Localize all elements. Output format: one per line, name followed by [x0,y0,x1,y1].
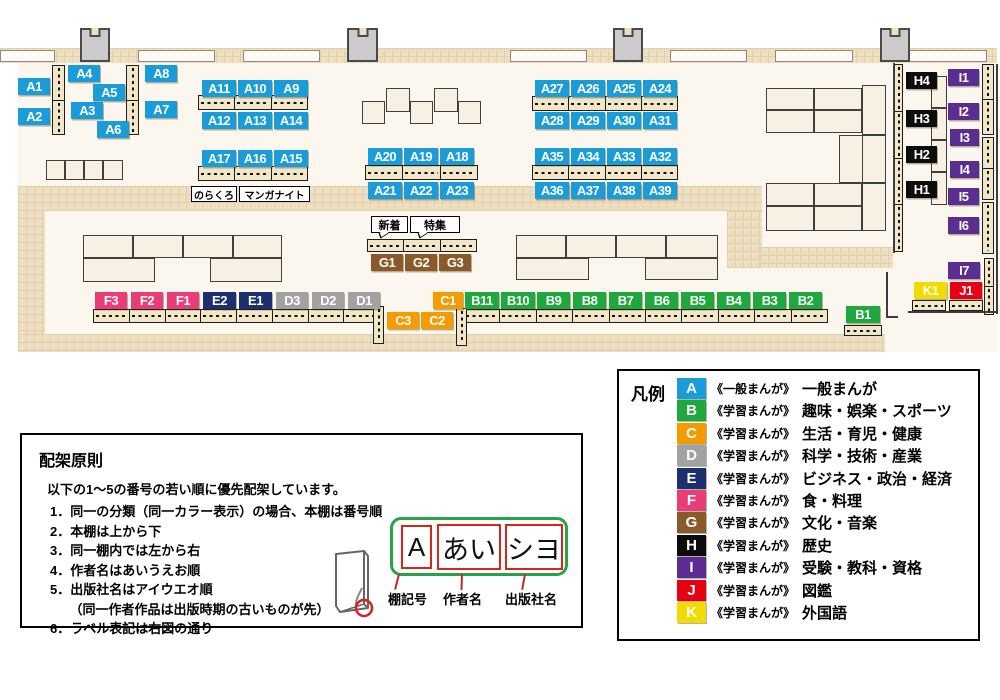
shelf-label-H4: H4 [906,72,937,89]
legend-chip-C: C [677,423,706,444]
legend-row-H: H《学習まんが》歴史 [677,535,832,556]
shelf-block [766,206,814,231]
shelf-segment [895,158,902,205]
shelf-block [814,183,862,206]
shelf-block [814,110,862,133]
legend-row-K: K《学習まんが》外国語 [677,602,847,623]
shelf-strip [984,258,994,315]
shelf-strip [532,165,678,180]
shelf-label-A20: A20 [368,148,402,165]
shelf-label-A2: A2 [18,108,50,125]
legend-chip-K: K [677,602,706,623]
legend-category: 趣味・娯楽・スポーツ [802,400,952,421]
shelf-label-A22: A22 [404,182,438,199]
shelf-segment [985,259,993,286]
legend-row-A: A《一般まんが》一般まんが [677,378,877,399]
shelf-label-A18: A18 [440,148,474,165]
legend-category: 一般まんが [802,378,877,399]
shelf-strip [894,64,903,252]
shelf-segment [983,99,993,134]
shelf-segment [236,310,272,322]
shelf-segment [499,310,535,322]
wall-line [908,311,998,313]
shelf-label-A10: A10 [238,80,272,97]
shelf-label-J1: J1 [950,282,982,299]
shelf-label-A31: A31 [643,112,677,129]
shelf-segment [681,310,717,322]
legend-type-label: 《学習まんが》 [711,514,802,531]
shelf-segment [983,203,993,253]
spine-label-part-1: A [401,525,432,569]
shelf-label-A8: A8 [145,65,177,82]
shelf-label-K1: K1 [914,282,947,299]
legend-chip-A: A [677,378,706,399]
map-annotation-new-arrivals: 新着 [371,216,408,233]
shelf-block [666,235,718,258]
shelf-label-B4: B4 [717,292,750,309]
legend-type-label: 《学習まんが》 [711,582,802,599]
shelf-segment [165,310,201,322]
shelf-label-A32: A32 [643,148,677,165]
shelf-label-A6: A6 [97,121,129,138]
shelf-strip [373,306,384,344]
shelf-strip [198,166,308,181]
legend-category: 科学・技術・産業 [802,445,922,466]
shelf-label-A3: A3 [71,102,103,119]
callout-label-3: 出版社名 [505,589,557,608]
legend-chip-D: D [677,445,706,466]
spine-label-diagram: Aあいシヨ [390,517,568,576]
shelf-segment [53,100,64,135]
shelf-block [210,258,282,282]
shelf-segment [53,66,64,100]
shelf-segment [605,166,641,179]
shelf-label-A17: A17 [202,150,236,167]
shelf-label-B10: B10 [501,292,535,309]
legend-type-label: 《学習まんが》 [711,604,802,621]
shelf-strip [532,96,678,111]
book-illustration [326,548,378,620]
shelf-label-I5: I5 [948,188,979,205]
legend-category: 歴史 [802,535,832,556]
principles-intro: 以下の1～5の番号の若い順に優先配架しています。 [47,479,346,498]
shelf-segment [402,166,439,179]
shelf-segment [308,310,344,322]
principles-item: 1．同一の分類（同一カラー表示）の場合、本棚は番号順 [50,502,382,522]
shelf-label-A33: A33 [607,148,641,165]
legend-row-G: G《学習まんが》文化・音楽 [677,512,877,533]
shelf-label-A11: A11 [202,80,236,97]
map-annotation-norakuro: のらくろ [191,186,237,202]
legend-row-E: E《学習まんが》ビジネス・政治・経済 [677,468,952,489]
shelf-label-I7: I7 [948,262,980,279]
shelf-label-A13: A13 [238,112,272,129]
shelf-label-H1: H1 [906,181,937,198]
wall-line [893,63,895,253]
shelf-label-F1: F1 [167,292,199,309]
shelf-block [862,135,886,183]
legend-type-label: 《学習まんが》 [711,537,802,554]
principles-title: 配架原則 [39,447,103,471]
shelf-strip [982,64,994,135]
window [670,50,747,62]
shelf-label-A4: A4 [68,65,100,82]
shelf-label-A24: A24 [643,80,677,97]
pillar [347,28,378,62]
shelf-strip [844,325,882,336]
shelf-label-G1: G1 [371,254,403,271]
shelf-segment [440,166,477,179]
legend-category: 生活・育児・健康 [802,423,922,444]
shelf-segment [199,96,234,109]
shelf-strip [912,300,946,311]
shelf-block [83,235,133,258]
shelf-label-G2: G2 [405,254,437,271]
legend-category: 食・料理 [802,490,862,511]
shelf-block [434,88,458,112]
window [908,50,987,62]
legend-chip-F: F [677,490,706,511]
legend-category: 図鑑 [802,580,832,601]
legend-chip-H: H [677,535,706,556]
shelf-block [84,160,103,180]
shelf-label-A7: A7 [145,101,177,118]
shelf-segment [718,310,754,322]
legend-chip-E: E [677,468,706,489]
shelf-label-A34: A34 [571,148,605,165]
shelf-segment [641,166,677,179]
shelf-segment [641,97,677,110]
shelf-segment [645,310,681,322]
shelf-segment [845,326,881,335]
shelf-label-A27: A27 [535,80,569,97]
shelf-label-A28: A28 [535,112,569,129]
shelf-label-A14: A14 [274,112,308,129]
shelf-segment [895,204,902,251]
shelf-segment [271,167,307,180]
shelf-segment [464,310,499,322]
window [510,50,587,62]
pillar [880,28,910,62]
shelf-label-E2: E2 [203,292,236,309]
shelf-segment [533,166,568,179]
shelf-label-H2: H2 [906,146,937,163]
shelf-block [233,235,282,258]
shelf-block [133,235,183,258]
shelf-strip [367,239,477,252]
shelf-label-A19: A19 [404,148,438,165]
shelf-segment [895,111,902,158]
shelf-label-G3: G3 [439,254,471,271]
shelf-segment [457,309,466,345]
shelf-label-B2: B2 [789,292,822,309]
shelf-label-I2: I2 [948,103,979,120]
shelf-label-I3: I3 [950,129,979,146]
spine-label-part-3: シヨ [505,524,563,570]
shelf-strip [93,309,380,323]
shelf-block [766,183,814,206]
shelf-block [103,160,123,180]
wall-band [18,334,885,352]
shelf-segment [234,167,270,180]
shelf-strip [456,308,467,346]
shelf-label-C1: C1 [433,292,463,309]
shelf-segment [374,307,383,343]
shelf-label-B6: B6 [645,292,678,309]
shelf-label-A38: A38 [607,182,641,199]
shelf-label-E1: E1 [239,292,272,309]
legend-category: 文化・音楽 [802,512,877,533]
shelf-block [362,101,385,124]
shelf-label-A23: A23 [440,182,474,199]
shelf-label-A16: A16 [238,150,272,167]
shelf-segment [913,301,945,310]
pillar [80,28,110,62]
legend-type-label: 《学習まんが》 [711,492,802,509]
shelf-label-D1: D1 [348,292,380,309]
shelf-segment [533,97,568,110]
shelf-label-A5: A5 [93,84,125,101]
shelf-segment [754,310,790,322]
wall-line [996,64,998,314]
legend-type-label: 《学習まんが》 [711,425,802,442]
principles-item: 6．ラベル表記は右図の通り [50,619,382,639]
window [138,50,215,62]
shelf-block [814,88,862,110]
shelf-strip [982,202,994,254]
map-annotation-special-feature: 特集 [410,216,460,233]
legend-category: 外国語 [802,602,847,623]
legend: 凡例 A《一般まんが》一般まんがB《学習まんが》趣味・娯楽・スポーツC《学習まん… [617,369,980,641]
shelf-segment [94,310,129,322]
callout-label-2: 作者名 [443,589,482,608]
shelf-segment [983,138,993,168]
legend-chip-J: J [677,580,706,601]
shelf-label-A39: A39 [643,182,677,199]
shelf-label-I4: I4 [950,161,979,178]
map-annotation-manga-night: マンガナイト [239,186,310,202]
shelf-segment [440,240,476,251]
legend-type-label: 《学習まんが》 [711,447,802,464]
shelf-block [83,258,155,282]
legend-chip-I: I [677,557,706,578]
legend-category: 受験・教科・資格 [802,557,922,578]
pillar [613,28,643,62]
shelf-label-F3: F3 [95,292,127,309]
shelf-block [862,85,886,135]
shelf-label-A37: A37 [571,182,605,199]
shelf-label-I6: I6 [948,217,979,234]
shelf-label-D2: D2 [312,292,344,309]
legend-row-C: C《学習まんが》生活・育児・健康 [677,423,922,444]
shelf-label-A12: A12 [202,112,236,129]
shelf-block [566,235,616,258]
shelf-block [814,206,862,231]
shelf-segment [127,66,138,100]
legend-title: 凡例 [631,380,665,405]
wall-band [760,247,893,268]
shelf-label-D3: D3 [276,292,308,309]
shelf-label-A21: A21 [368,182,402,199]
shelf-segment [609,310,645,322]
legend-row-I: I《学習まんが》受験・教科・資格 [677,557,922,578]
shelf-label-C2: C2 [421,312,453,329]
legend-type-label: 《学習まんが》 [711,559,802,576]
shelf-block [46,160,65,180]
principles-item: 2．本棚は上から下 [50,522,382,542]
shelf-strip [982,137,994,200]
shelf-label-B3: B3 [753,292,786,309]
shelf-label-A15: A15 [274,150,308,167]
shelf-label-A25: A25 [607,80,641,97]
shelf-segment [985,286,993,314]
shelf-strip [365,165,478,180]
shelf-strip [52,65,65,135]
shelf-label-B9: B9 [537,292,570,309]
legend-row-D: D《学習まんが》科学・技術・産業 [677,445,922,466]
shelf-label-B1: B1 [846,306,880,323]
shelf-label-A29: A29 [571,112,605,129]
shelf-segment [234,96,270,109]
shelf-label-B5: B5 [681,292,714,309]
shelf-segment [129,310,165,322]
shelf-block [410,101,433,124]
window [775,50,853,62]
shelf-segment [200,310,236,322]
shelf-block [839,135,863,183]
legend-type-label: 《学習まんが》 [711,402,802,419]
shelf-segment [199,167,234,180]
shelf-block [386,88,410,112]
shelf-segment [895,65,902,111]
shelf-label-B7: B7 [609,292,642,309]
shelf-segment [572,310,608,322]
shelf-label-A26: A26 [571,80,605,97]
shelf-label-H3: H3 [906,110,937,127]
shelf-block [862,183,886,231]
window [0,50,55,62]
shelf-block [766,88,814,110]
shelf-label-B11: B11 [465,292,499,309]
shelf-segment [271,96,307,109]
shelf-label-A35: A35 [535,148,569,165]
shelf-label-C3: C3 [387,312,419,329]
shelf-label-A9: A9 [274,80,308,97]
legend-type-label: 《一般まんが》 [711,380,802,397]
shelf-strip [463,309,828,323]
shelf-segment [983,168,993,199]
shelf-segment [568,166,604,179]
shelf-strip [949,300,983,311]
legend-chip-G: G [677,512,706,533]
shelf-label-I1: I1 [948,69,979,86]
legend-row-F: F《学習まんが》食・料理 [677,490,862,511]
shelf-segment [950,301,982,310]
wall-band [18,186,45,352]
shelf-segment [568,97,604,110]
shelf-label-A30: A30 [607,112,641,129]
shelf-segment [272,310,308,322]
wall-band [727,211,762,268]
shelf-label-A36: A36 [535,182,569,199]
shelf-block [766,110,814,133]
shelf-segment [605,97,641,110]
page: { "palette": { "A": "#1a9cd8", "B": "#1f… [0,0,1000,700]
shelf-block [516,235,566,258]
callout-label-1: 棚記号 [388,589,427,608]
legend-chip-B: B [677,400,706,421]
legend-type-label: 《学習まんが》 [711,470,802,487]
shelf-label-A1: A1 [18,78,50,95]
window [243,50,320,62]
shelf-block [183,235,233,258]
shelf-segment [403,240,439,251]
shelf-segment [791,310,827,322]
legend-category: ビジネス・政治・経済 [802,468,952,489]
shelf-strip [198,95,308,110]
legend-row-J: J《学習まんが》図鑑 [677,580,832,601]
legend-row-B: B《学習まんが》趣味・娯楽・スポーツ [677,400,952,421]
shelf-label-B8: B8 [573,292,606,309]
shelf-label-F2: F2 [131,292,163,309]
shelf-segment [983,65,993,99]
wall-line [886,316,898,318]
spine-label-part-2: あい [437,524,501,570]
shelf-segment [368,240,403,251]
shelf-block [645,258,718,280]
shelf-block [65,160,84,180]
shelf-segment [366,166,402,179]
shelf-block [616,235,666,258]
wall-line [886,272,888,318]
shelf-block [516,258,589,280]
shelf-block [458,101,481,124]
shelf-segment [536,310,572,322]
